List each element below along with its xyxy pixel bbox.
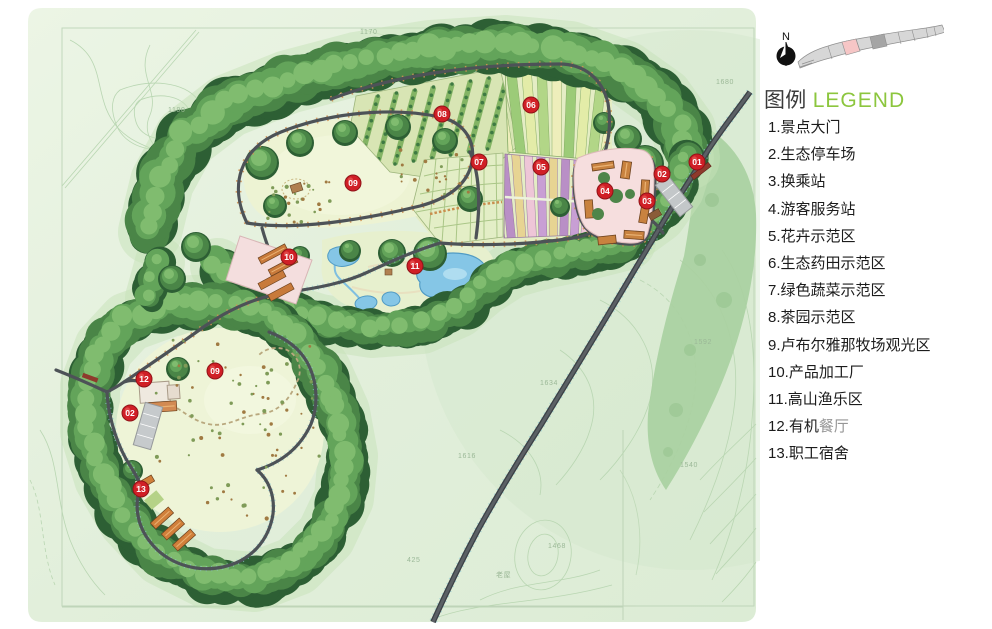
legend-item-4: 4.游客服务站: [768, 196, 931, 223]
elevation-label: 425: [407, 557, 420, 564]
elevation-label: 1592: [694, 339, 712, 346]
legend-item-9: 9.卢布尔雅那牧场观光区: [768, 332, 931, 359]
svg-text:05: 05: [536, 162, 546, 172]
svg-text:13: 13: [136, 484, 146, 494]
map-marker-pasture-zone-lower[interactable]: 09: [207, 363, 223, 379]
map-marker-processing-plant[interactable]: 10: [281, 249, 297, 265]
elevation-label: 1634: [540, 380, 558, 387]
elevation-label: 1190: [168, 107, 185, 114]
map-marker-tea-garden-demo-zone[interactable]: 08: [434, 106, 450, 122]
map-marker-organic-restaurant[interactable]: 12: [136, 371, 152, 387]
svg-text:03: 03: [642, 196, 652, 206]
legend-item-10: 10.产品加工厂: [768, 359, 931, 386]
elevation-label: 1468: [548, 543, 566, 550]
location-inset-map: [794, 22, 944, 72]
svg-text:06: 06: [526, 100, 536, 110]
site-plan-map: 11701190168015921634161615401468425老屋 01…: [0, 0, 760, 629]
svg-text:12: 12: [139, 374, 149, 384]
svg-text:01: 01: [692, 157, 702, 167]
svg-text:02: 02: [657, 169, 667, 179]
svg-text:08: 08: [437, 109, 447, 119]
legend-item-3: 3.换乘站: [768, 168, 931, 195]
elevation-label: 1616: [458, 453, 476, 460]
map-marker-transfer-station[interactable]: 03: [639, 193, 655, 209]
map-marker-vegetable-demo-zone[interactable]: 07: [471, 154, 487, 170]
legend-item-5: 5.花卉示范区: [768, 223, 931, 250]
svg-text:02: 02: [125, 408, 135, 418]
svg-text:09: 09: [348, 178, 358, 188]
north-label: N: [782, 31, 790, 43]
map-marker-pasture-zone-upper[interactable]: 09: [345, 175, 361, 191]
legend-panel: N 图例 LEGEND 1.景点大门2.生态停车场3.换乘站4.游客服务站5.花…: [760, 0, 992, 629]
legend-title-en: LEGEND: [813, 89, 905, 112]
legend-item-11: 11.高山渔乐区: [768, 386, 931, 413]
svg-text:10: 10: [284, 252, 294, 262]
legend-item-13: 13.职工宿舍: [768, 440, 931, 467]
map-marker-herb-field-demo-zone[interactable]: 06: [523, 97, 539, 113]
elevation-label: 1680: [716, 79, 734, 86]
legend-item-12: 12.有机餐厅: [768, 413, 931, 440]
map-marker-scenic-gate[interactable]: 01: [689, 154, 705, 170]
legend-title-zh: 图例: [764, 89, 807, 112]
svg-text:07: 07: [474, 157, 484, 167]
map-marker-staff-dormitory[interactable]: 13: [133, 481, 149, 497]
elevation-label: 1540: [680, 462, 698, 469]
legend-list: 1.景点大门2.生态停车场3.换乘站4.游客服务站5.花卉示范区6.生态药田示范…: [768, 114, 931, 468]
svg-text:09: 09: [210, 366, 220, 376]
screenshot-root: 11701190168015921634161615401468425老屋 01…: [0, 0, 992, 629]
legend-item-6: 6.生态药田示范区: [768, 250, 931, 277]
svg-text:04: 04: [600, 186, 610, 196]
legend-item-2: 2.生态停车场: [768, 141, 931, 168]
map-marker-flower-demo-zone[interactable]: 05: [533, 159, 549, 175]
legend-item-7: 7.绿色蔬菜示范区: [768, 277, 931, 304]
map-marker-eco-parking-east[interactable]: 02: [654, 166, 670, 182]
legend-item-8: 8.茶园示范区: [768, 304, 931, 331]
elevation-label: 老屋: [496, 570, 511, 579]
legend-item-1: 1.景点大门: [768, 114, 931, 141]
map-marker-visitor-service-station[interactable]: 04: [597, 183, 613, 199]
elevation-label: 1170: [360, 29, 377, 36]
map-marker-alpine-fishing-zone[interactable]: 11: [407, 258, 423, 274]
svg-text:11: 11: [410, 261, 419, 271]
legend-title: 图例 LEGEND: [764, 84, 905, 114]
map-marker-eco-parking-west[interactable]: 02: [122, 405, 138, 421]
